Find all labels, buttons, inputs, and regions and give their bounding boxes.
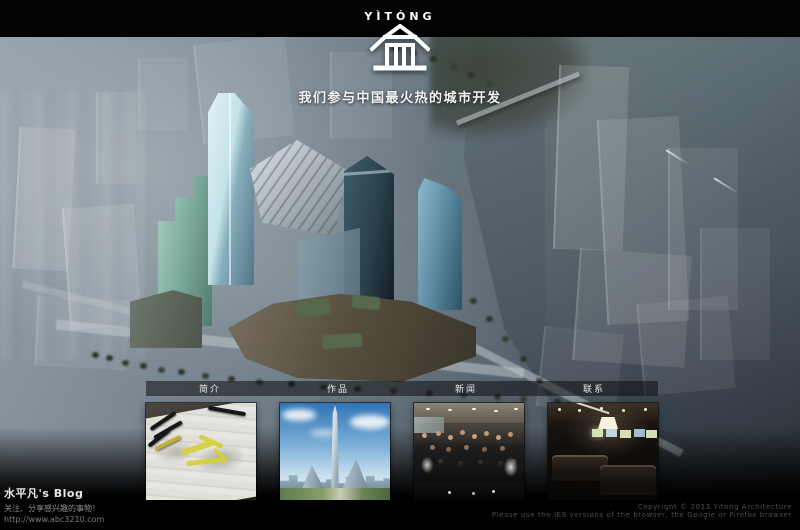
blog-url-link[interactable]: http://www.abc3210.com xyxy=(4,515,104,524)
blog-title[interactable]: 水平凡's Blog xyxy=(4,485,104,501)
table-items xyxy=(448,491,451,494)
copyright-line1: Copyright © 2013 Yitong Architecture xyxy=(492,503,792,511)
cloud xyxy=(310,429,336,437)
cloud xyxy=(282,409,316,421)
thumbnail-row xyxy=(146,403,658,500)
ceiling-lights xyxy=(426,408,430,410)
logo[interactable]: YÌTÓNG xyxy=(0,10,800,74)
group-of-people xyxy=(422,433,427,438)
nav-item-works[interactable]: 作品 xyxy=(274,381,402,396)
nav-item-intro[interactable]: 简介 xyxy=(146,381,274,396)
thumbnail-tower-rendering[interactable] xyxy=(280,403,390,500)
blog-subtitle: 关注、分享感兴趣的事物！ xyxy=(4,503,104,514)
thumbnail-team-photo[interactable] xyxy=(414,403,524,500)
page: YÌTÓNG 我们参与中国最火热的城市开发 简介 作品 新闻 联系 xyxy=(0,0,800,530)
copyright-line2: Please use the IE9 versions of the brows… xyxy=(492,511,792,519)
copyright-notice: Copyright © 2013 Yitong Architecture Ple… xyxy=(492,503,792,519)
group-of-people xyxy=(414,443,524,483)
tagline: 我们参与中国最火热的城市开发 xyxy=(0,87,800,106)
cloud xyxy=(350,415,390,429)
thumbnail-masterplan-sketch[interactable] xyxy=(146,403,256,500)
sail-building xyxy=(342,459,368,489)
main-nav: 简介 作品 新闻 联系 xyxy=(146,381,658,396)
thumbnail-office-interior[interactable] xyxy=(548,403,658,500)
blog-info: 水平凡's Blog 关注、分享感兴趣的事物！ http://www.abc32… xyxy=(4,485,104,524)
nav-item-news[interactable]: 新闻 xyxy=(402,381,530,396)
warm-glow xyxy=(548,403,658,500)
table xyxy=(414,484,524,500)
yitong-logo-icon xyxy=(370,24,430,74)
park-foreground xyxy=(280,488,390,500)
window xyxy=(414,417,444,433)
logo-wordmark: YÌTÓNG xyxy=(0,10,800,23)
sail-building xyxy=(302,465,324,489)
nav-item-contact[interactable]: 联系 xyxy=(530,381,658,396)
